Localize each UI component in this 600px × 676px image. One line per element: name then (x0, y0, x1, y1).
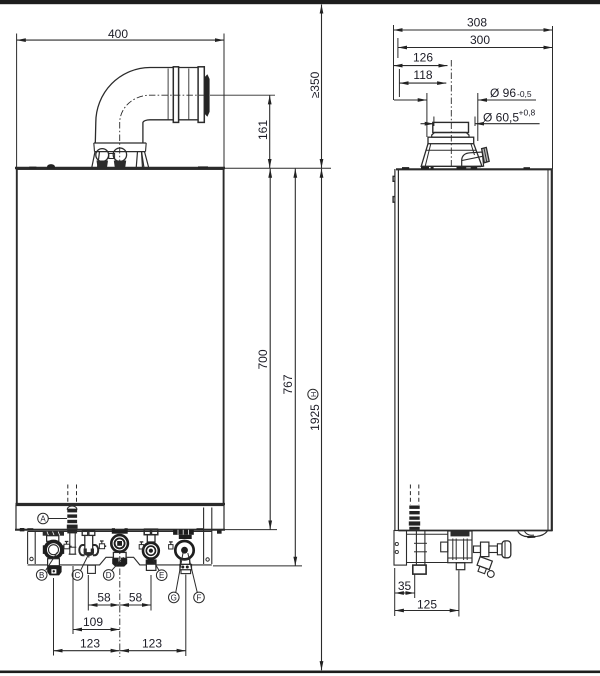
svg-text:+0,8: +0,8 (519, 108, 536, 118)
svg-text:Ø 96: Ø 96 (490, 86, 516, 100)
svg-text:308: 308 (467, 16, 487, 30)
svg-text:H: H (309, 392, 318, 397)
svg-text:B: B (39, 571, 44, 580)
svg-text:123: 123 (142, 636, 162, 650)
svg-text:58: 58 (97, 591, 111, 605)
svg-text:-0,5: -0,5 (517, 89, 532, 99)
svg-text:767: 767 (281, 374, 295, 394)
svg-text:C: C (75, 571, 81, 580)
svg-text:G: G (171, 593, 177, 602)
svg-text:123: 123 (80, 636, 100, 650)
svg-text:118: 118 (413, 68, 432, 82)
svg-text:126: 126 (413, 51, 433, 65)
svg-text:Ø 60,5: Ø 60,5 (483, 110, 519, 124)
svg-text:58: 58 (129, 591, 143, 605)
svg-text:700: 700 (256, 349, 270, 369)
svg-text:D: D (106, 571, 112, 580)
svg-text:≥350: ≥350 (308, 71, 322, 98)
svg-text:300: 300 (470, 33, 490, 47)
svg-text:161: 161 (256, 120, 270, 140)
svg-text:A: A (40, 514, 46, 523)
svg-text:125: 125 (417, 597, 437, 611)
svg-text:109: 109 (83, 615, 103, 629)
svg-text:F: F (197, 593, 202, 602)
svg-text:1925: 1925 (308, 404, 322, 431)
svg-text:35: 35 (398, 579, 412, 593)
svg-text:400: 400 (108, 27, 128, 41)
svg-text:E: E (159, 571, 164, 580)
